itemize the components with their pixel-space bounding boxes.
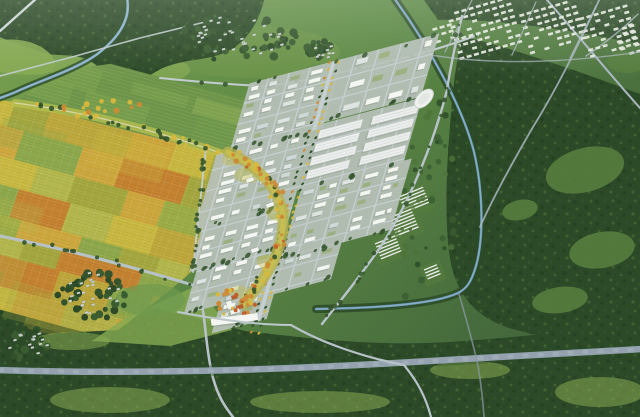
aerial-rendering-stage [0, 0, 640, 417]
atmospheric-haze [0, 0, 640, 80]
masterplan-aerial-rendering [0, 0, 640, 417]
